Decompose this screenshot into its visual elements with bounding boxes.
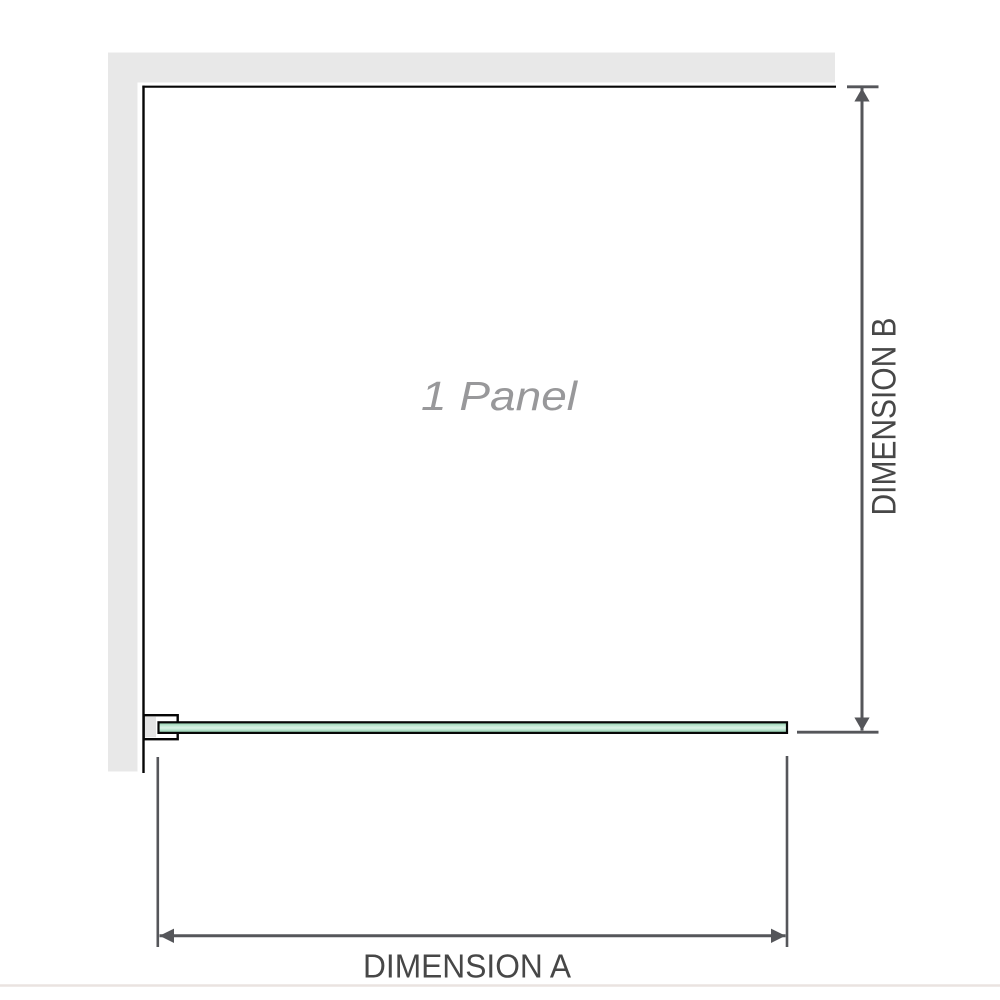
svg-text:DIMENSION A: DIMENSION A — [363, 948, 571, 985]
svg-text:DIMENSION B: DIMENSION B — [866, 318, 904, 516]
svg-text:1 Panel: 1 Panel — [421, 373, 579, 419]
